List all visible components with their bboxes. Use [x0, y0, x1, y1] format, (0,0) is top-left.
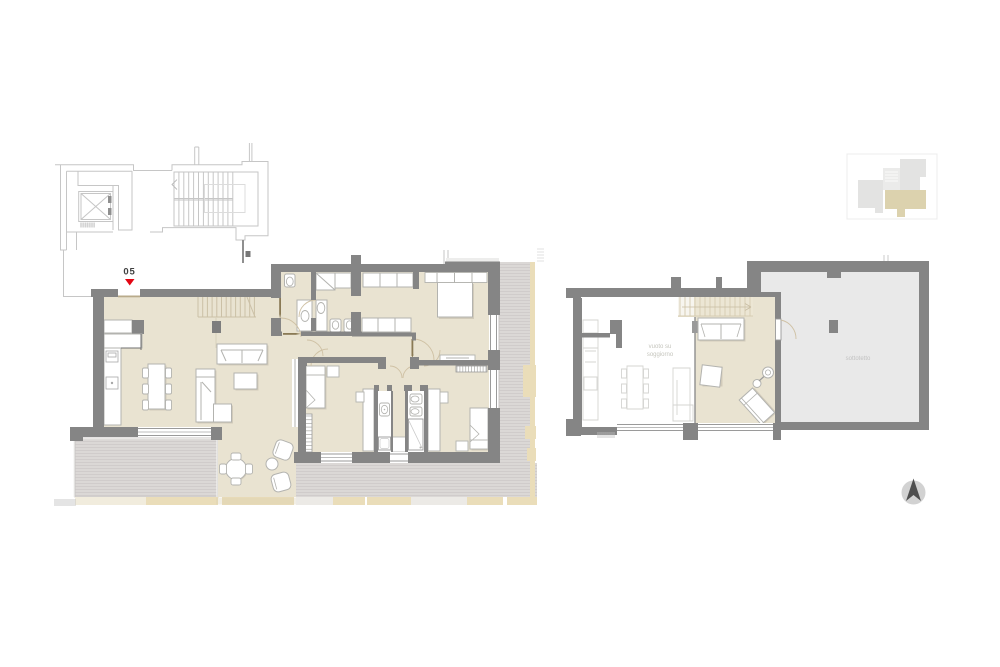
svg-text:vuoto su: vuoto su [649, 344, 672, 350]
svg-text:sottotetto: sottotetto [846, 356, 871, 362]
svg-text:05: 05 [123, 267, 135, 278]
svg-text:soggiorno: soggiorno [647, 352, 674, 358]
